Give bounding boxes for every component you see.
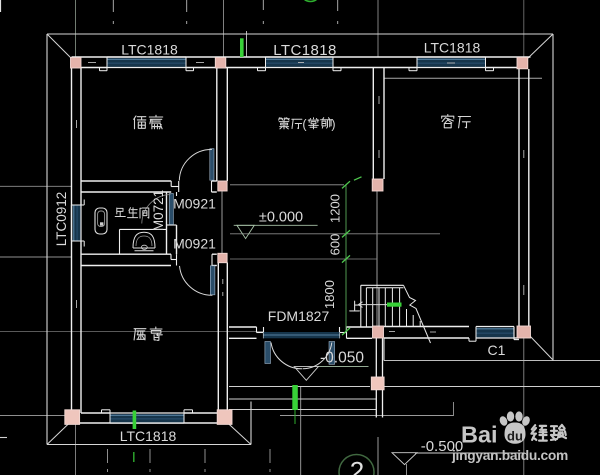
svg-text:jingyan.baidu.com: jingyan.baidu.com [451, 448, 568, 463]
svg-text:M0721: M0721 [151, 190, 166, 231]
svg-text:1800: 1800 [322, 280, 337, 309]
svg-text:M0921: M0921 [173, 196, 216, 212]
svg-text:Bai: Bai [461, 422, 498, 448]
svg-text:M0921: M0921 [173, 236, 216, 252]
svg-text:±0.000: ±0.000 [259, 210, 303, 226]
svg-text:): ) [331, 118, 335, 132]
svg-text:LTC1818: LTC1818 [273, 42, 336, 59]
svg-text:2: 2 [350, 456, 364, 475]
svg-text:LTC1818: LTC1818 [121, 42, 178, 58]
svg-text:LTC1818: LTC1818 [120, 428, 177, 444]
svg-text:-0.050: -0.050 [320, 350, 364, 367]
svg-text:600: 600 [328, 234, 343, 256]
svg-text:C1: C1 [488, 342, 506, 358]
svg-text:1200: 1200 [328, 194, 343, 223]
svg-text:FDM1827: FDM1827 [268, 308, 330, 324]
svg-text:LTC1818: LTC1818 [424, 40, 481, 56]
svg-text:LTC0912: LTC0912 [54, 192, 69, 247]
svg-text:du: du [507, 429, 523, 444]
